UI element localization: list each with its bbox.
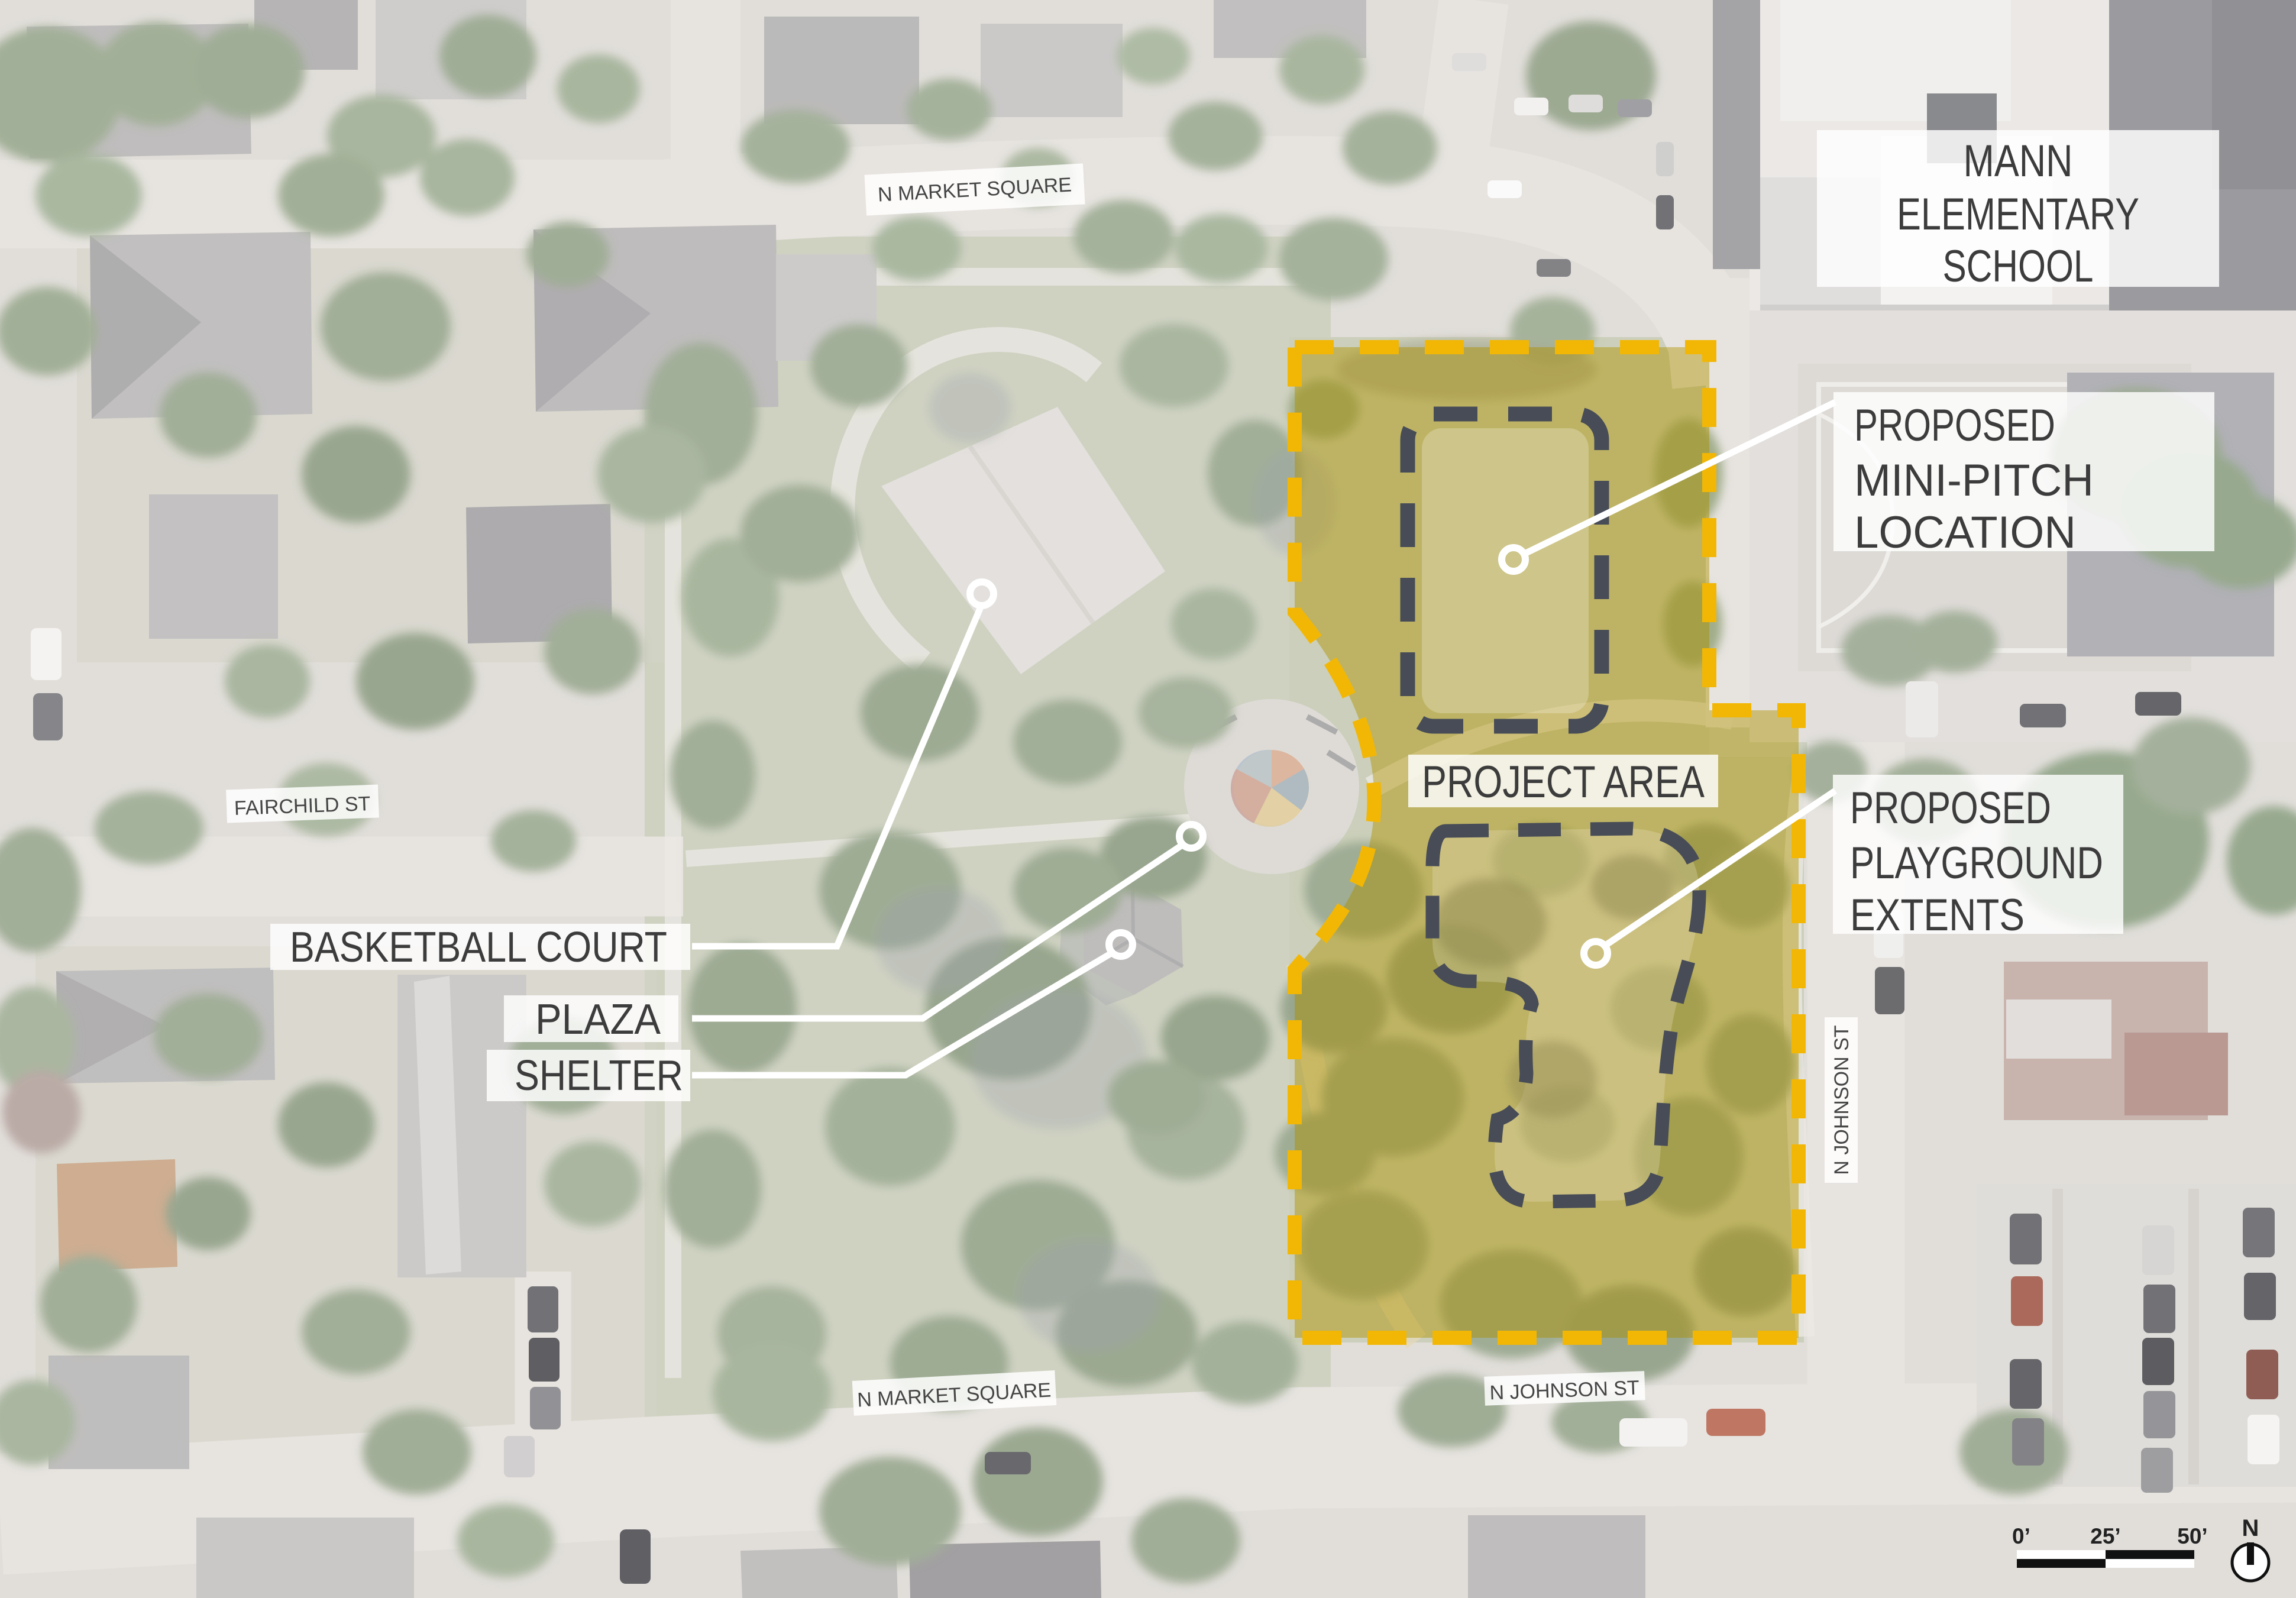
svg-text:EXTENTS: EXTENTS [1850,890,2025,940]
svg-text:PLAYGROUND: PLAYGROUND [1850,838,2103,888]
svg-text:0’: 0’ [2012,1524,2030,1548]
svg-text:MINI-PITCH: MINI-PITCH [1854,455,2094,506]
svg-text:N JOHNSON ST: N JOHNSON ST [1831,1025,1853,1175]
svg-text:PLAZA: PLAZA [535,996,661,1043]
svg-text:PROPOSED: PROPOSED [1850,783,2051,833]
svg-text:MANN: MANN [1964,136,2073,186]
svg-text:FAIRCHILD ST: FAIRCHILD ST [234,792,371,820]
svg-text:25’: 25’ [2090,1524,2120,1548]
svg-text:BASKETBALL COURT: BASKETBALL COURT [290,924,667,971]
svg-text:SHELTER: SHELTER [515,1052,683,1099]
svg-text:LOCATION: LOCATION [1854,507,2076,558]
svg-text:50’: 50’ [2177,1524,2207,1548]
svg-text:SCHOOL: SCHOOL [1943,241,2094,292]
svg-text:ELEMENTARY: ELEMENTARY [1897,189,2139,240]
svg-text:N: N [2242,1515,2259,1541]
svg-text:PROPOSED: PROPOSED [1854,400,2055,451]
svg-text:PROJECT AREA: PROJECT AREA [1422,757,1705,807]
